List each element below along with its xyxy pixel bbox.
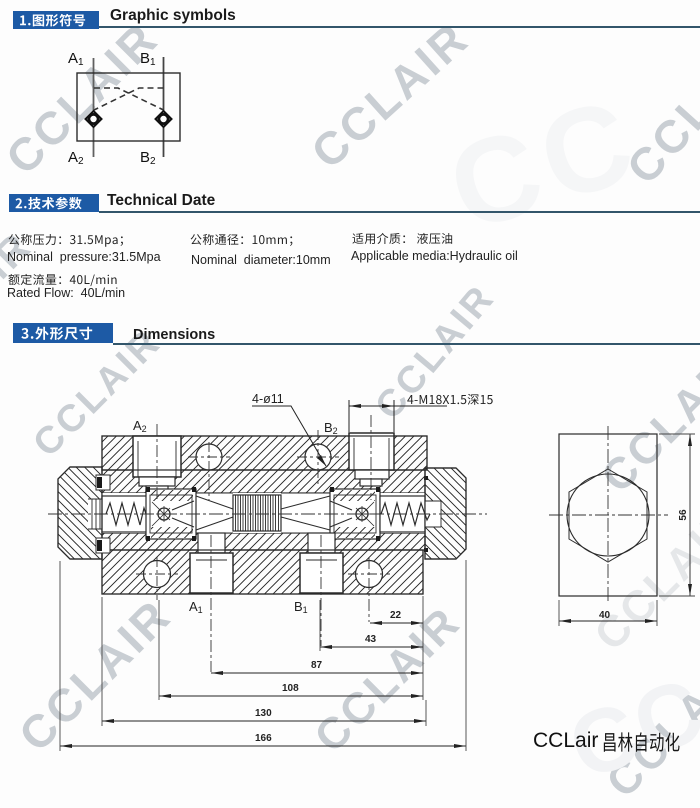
svg-text:4-ø11: 4-ø11 (252, 392, 284, 406)
svg-text:40: 40 (599, 610, 611, 621)
svg-text:108: 108 (282, 683, 299, 694)
svg-text:22: 22 (390, 610, 402, 621)
svg-text:A2: A2 (68, 149, 84, 167)
svg-text:B2: B2 (324, 420, 338, 436)
svg-text:A2: A2 (133, 418, 147, 434)
svg-text:166: 166 (255, 733, 272, 744)
svg-text:B1: B1 (294, 599, 308, 615)
svg-text:56: 56 (678, 509, 689, 521)
svg-text:130: 130 (255, 708, 272, 719)
svg-text:B2: B2 (140, 149, 156, 167)
svg-text:87: 87 (311, 660, 323, 671)
svg-text:B1: B1 (140, 50, 156, 68)
svg-text:A1: A1 (189, 599, 203, 615)
svg-text:A1: A1 (68, 50, 84, 68)
svg-text:43: 43 (365, 634, 377, 645)
